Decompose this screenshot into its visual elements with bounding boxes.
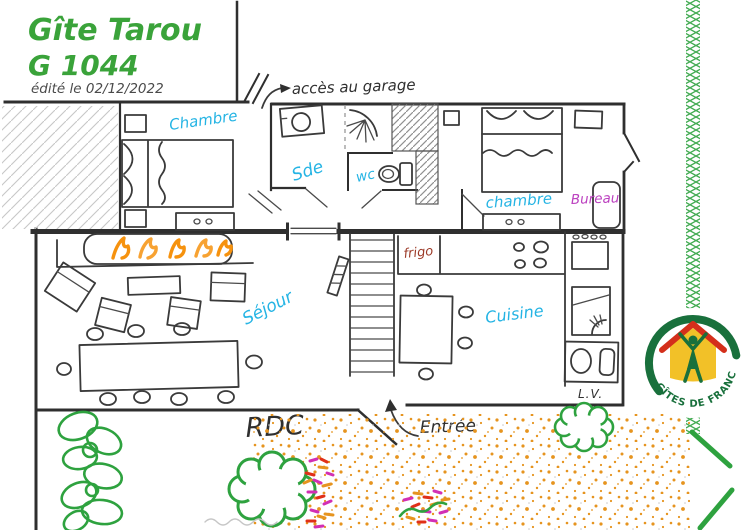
armchair [167, 297, 201, 329]
bed-left-pillows [124, 141, 148, 206]
living-room: Séjour [45, 234, 298, 405]
garage-door-open[interactable] [244, 74, 268, 103]
oven-knobs [573, 235, 606, 240]
garage-access-label: accès au garage [292, 76, 416, 98]
fireplace-flames [113, 238, 231, 258]
garage-access-arrowhead [280, 84, 291, 93]
garage-hatched-area [2, 106, 118, 229]
nightstand [575, 111, 603, 129]
kitchen: frigo L.V. Cuisine [398, 232, 618, 401]
coffee-table [128, 276, 181, 295]
kitchen-table [399, 296, 452, 364]
dining-table [79, 341, 238, 391]
nightstand [444, 111, 459, 125]
radiator [327, 256, 348, 295]
armchair [211, 272, 246, 301]
dishwasher-label: L.V. [578, 387, 603, 401]
fence-border [686, 0, 732, 528]
washbasin [280, 105, 324, 137]
kitchen-chairs [417, 285, 473, 380]
dining-chairs [57, 323, 262, 405]
sink-unit [565, 342, 619, 383]
bed-left-blanket [159, 142, 165, 204]
room-label-kitchen: Cuisine [484, 301, 545, 327]
oven [572, 235, 608, 270]
door-swings[interactable] [249, 189, 484, 216]
bed-right-pillows [482, 111, 562, 134]
entrance-arrowhead [385, 399, 397, 412]
bedroom-left: Chambre [122, 107, 239, 230]
room-label-office: Bureau [571, 190, 620, 208]
door-right-swing [624, 133, 639, 172]
armchair [95, 298, 131, 332]
nightstand [125, 115, 146, 132]
staircase[interactable] [350, 234, 394, 376]
dresser-right [483, 214, 560, 230]
fence-diagonals [692, 432, 732, 528]
shower [347, 110, 377, 142]
room-label-bedroom-right: chambre [485, 189, 553, 212]
bed-left [122, 140, 233, 207]
cooktop-burners [514, 242, 548, 269]
title-block: Gîte Tarou G 1044 édité le 02/12/2022 [28, 2, 237, 100]
room-label-living-room: Séjour [239, 287, 297, 330]
floor-plan-canvas: Gîte Tarou G 1044 édité le 02/12/2022 ac [0, 0, 745, 530]
bush-small [555, 403, 613, 451]
room-label-wc: wc [355, 166, 377, 186]
dresser-left [176, 213, 234, 230]
nightstand [125, 210, 146, 227]
bed-right-blanket [483, 150, 552, 156]
bedroom-right: chambre Bureau [444, 108, 620, 230]
edited-date: édité le 02/12/2022 [31, 81, 164, 97]
toilet [379, 163, 412, 185]
wall-right [623, 104, 624, 405]
gite-code: G 1044 [28, 49, 139, 82]
gite-title: Gîte Tarou [28, 13, 202, 48]
room-label-shower-room: Sde [289, 157, 326, 186]
room-label-bedroom-left: Chambre [168, 107, 239, 134]
window-middle [291, 228, 336, 233]
hedge-left [55, 407, 126, 530]
fridge-label: frigo [403, 244, 434, 262]
microwave-appliance [572, 287, 610, 335]
bush-large [229, 452, 315, 526]
fireplace [57, 234, 253, 267]
armchair [45, 262, 95, 311]
window-middle-caps [288, 224, 340, 239]
